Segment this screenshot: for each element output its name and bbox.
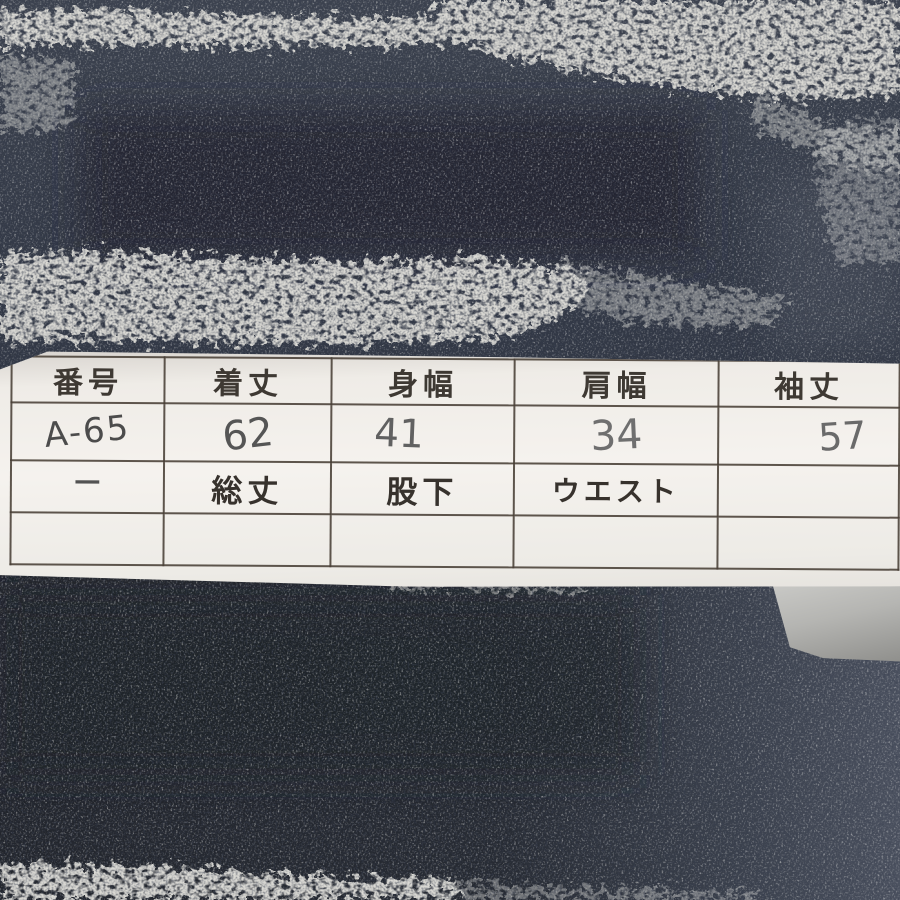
value-cell-sleeve-length: 57 [718,407,899,466]
empty-row [10,512,898,569]
value-cell-number: A-65 [11,402,164,461]
subheader-cell-inseam: 股下 [331,462,514,515]
header-cell-body-length: 着丈 [164,357,331,404]
value-cell-body-length: 62 [164,403,331,462]
subheader-label: ウエスト [552,470,680,511]
subheader-cell-dash: − [11,460,164,513]
header-label: 身幅 [388,360,458,404]
empty-cell [163,513,330,566]
subheader-cell-blank [718,465,899,518]
header-cell-number: 番号 [11,356,164,403]
header-cell-body-width: 身幅 [331,358,514,405]
handwritten-value: 57 [817,416,868,457]
empty-cell [717,517,898,570]
value-cell-body-width: 41 [331,404,514,463]
subheader-label: 総丈 [211,465,283,510]
subheader-cell-total-length: 総丈 [164,461,331,514]
subheader-cell-waist: ウエスト [514,463,718,516]
handwritten-value: 41 [373,413,424,454]
size-tag-paper: 番号 着丈 身幅 肩幅 袖丈 A-65 62 41 34 57 − 総丈 股下 … [0,351,900,590]
measurement-values-row: A-65 62 41 34 57 [11,402,899,465]
handwritten-value: 34 [589,413,643,456]
header-label: 袖丈 [774,362,844,406]
empty-cell [330,514,513,567]
table-header-row: 番号 着丈 身幅 肩幅 袖丈 [11,356,899,407]
secondary-header-row: − 総丈 股下 ウエスト [11,460,899,517]
header-cell-sleeve-length: 袖丈 [718,361,899,408]
header-label: 番号 [53,358,123,402]
handwritten-value: 62 [220,412,275,458]
value-cell-shoulder-width: 34 [514,405,718,464]
empty-cell [10,512,163,565]
photo-canvas: 番号 着丈 身幅 肩幅 袖丈 A-65 62 41 34 57 − 総丈 股下 … [0,0,900,900]
header-label: 着丈 [213,359,283,403]
empty-cell [513,515,717,568]
header-cell-shoulder-width: 肩幅 [514,359,718,406]
size-table: 番号 着丈 身幅 肩幅 袖丈 A-65 62 41 34 57 − 総丈 股下 … [9,355,900,570]
handwritten-dash: − [71,462,103,500]
header-label: 肩幅 [581,361,651,405]
subheader-label: 股下 [386,466,458,511]
handwritten-value: A-65 [43,411,132,453]
